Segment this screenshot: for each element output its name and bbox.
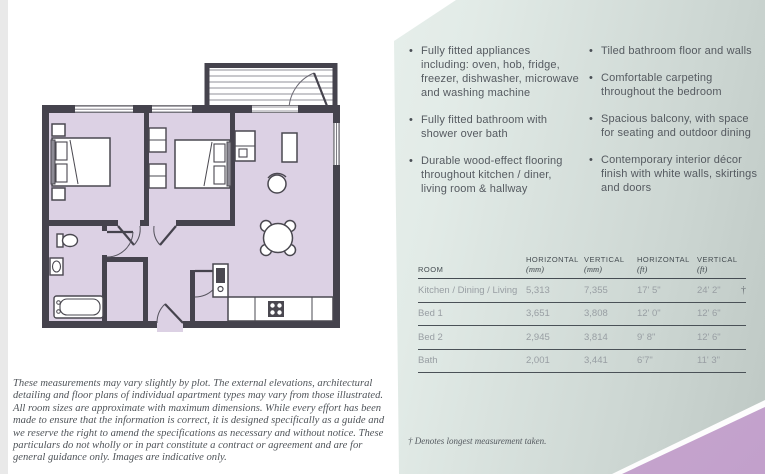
table-row: Bed 1 3,651 3,808 12' 0" 12' 6"	[418, 303, 746, 327]
dining-table	[264, 224, 293, 253]
bed-2	[175, 140, 231, 188]
col-header-room: ROOM	[418, 265, 526, 274]
feature-list-left: • Fully fitted appliances including: ove…	[409, 44, 579, 209]
feature-item: • Fully fitted appliances including: ove…	[409, 44, 579, 100]
table-row: Bath 2,001 3,441 6'7" 11' 3"	[418, 350, 746, 374]
cell-room: Kitchen / Dining / Living	[418, 285, 526, 296]
col-header-horizontal-mm: HORIZONTAL(mm)	[526, 255, 584, 274]
table-header-row: ROOM HORIZONTAL(mm) VERTICAL(mm) HORIZON…	[418, 244, 746, 279]
cell-room: Bath	[418, 355, 526, 366]
cell-h-ft: 6'7"	[637, 355, 697, 366]
feature-text: Fully fitted bathroom with shower over b…	[421, 113, 579, 141]
bullet-icon: •	[589, 153, 601, 195]
feature-item: • Durable wood-effect flooring throughou…	[409, 154, 579, 196]
table-row: Bed 2 2,945 3,814 9' 8" 12' 6"	[418, 326, 746, 350]
cell-room: Bed 1	[418, 308, 526, 319]
cell-v-mm: 3,441	[584, 355, 637, 366]
bullet-icon: •	[589, 112, 601, 140]
feature-item: • Comfortable carpeting throughout the b…	[589, 71, 761, 99]
feature-text: Durable wood-effect flooring throughout …	[421, 154, 579, 196]
feature-text: Comfortable carpeting throughout the bed…	[601, 71, 761, 99]
footnote-text: † Denotes longest measurement taken.	[408, 436, 546, 446]
hob	[268, 301, 284, 317]
cell-v-mm: 7,355	[584, 285, 637, 296]
cell-v-mm: 3,814	[584, 332, 637, 343]
cell-v-ft: 11' 3"	[697, 355, 737, 366]
cell-h-ft: 17' 5"	[637, 285, 697, 296]
cell-v-ft: 12' 6"	[697, 308, 737, 319]
bullet-icon: •	[409, 113, 421, 141]
feature-item: • Contemporary interior décor finish wit…	[589, 153, 761, 195]
bullet-icon: •	[409, 44, 421, 100]
dagger-mark: †	[737, 285, 746, 296]
cell-h-mm: 2,945	[526, 332, 584, 343]
bullet-icon: •	[589, 71, 601, 99]
disclaimer-text: These measurements may vary slightly by …	[13, 378, 385, 465]
feature-item: • Spacious balcony, with space for seati…	[589, 112, 761, 140]
cell-h-mm: 2,001	[526, 355, 584, 366]
feature-text: Spacious balcony, with space for seating…	[601, 112, 761, 140]
cell-v-ft: 24' 2"	[697, 285, 737, 296]
page-edge	[0, 0, 8, 474]
cell-h-ft: 9' 8"	[637, 332, 697, 343]
col-header-vertical-ft: VERTICAL(ft)	[697, 255, 737, 274]
cell-room: Bed 2	[418, 332, 526, 343]
feature-text: Tiled bathroom floor and walls	[601, 44, 752, 58]
feature-text: Fully fitted appliances including: oven,…	[421, 44, 579, 100]
cell-v-ft: 12' 6"	[697, 332, 737, 343]
bullet-icon: •	[409, 154, 421, 196]
floor-plan	[30, 52, 352, 344]
feature-text: Contemporary interior décor finish with …	[601, 153, 761, 195]
cell-h-mm: 5,313	[526, 285, 584, 296]
feature-item: • Fully fitted bathroom with shower over…	[409, 113, 579, 141]
bullet-icon: •	[589, 44, 601, 58]
feature-item: • Tiled bathroom floor and walls	[589, 44, 761, 58]
brochure-page: These measurements may vary slightly by …	[0, 0, 765, 474]
cell-v-mm: 3,808	[584, 308, 637, 319]
cell-h-ft: 12' 0"	[637, 308, 697, 319]
feature-list-right: • Tiled bathroom floor and walls • Comfo…	[589, 44, 761, 208]
col-header-horizontal-ft: HORIZONTAL(ft)	[637, 255, 697, 274]
table-row: Kitchen / Dining / Living 5,313 7,355 17…	[418, 279, 746, 303]
measurements-table: ROOM HORIZONTAL(mm) VERTICAL(mm) HORIZON…	[418, 244, 746, 373]
cell-h-mm: 3,651	[526, 308, 584, 319]
armchair	[268, 175, 286, 193]
col-header-vertical-mm: VERTICAL(mm)	[584, 255, 637, 274]
